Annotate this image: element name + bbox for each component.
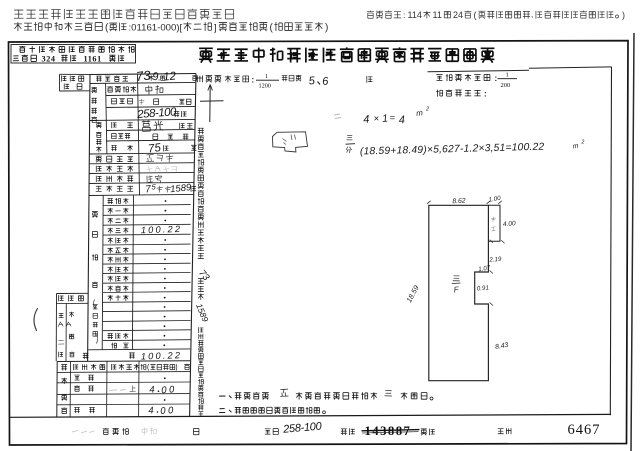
svg-text::: : xyxy=(495,74,498,83)
svg-text:2: 2 xyxy=(581,140,585,146)
svg-text:(: ( xyxy=(474,10,477,20)
svg-text:1: 1 xyxy=(265,73,268,80)
svg-text::: : xyxy=(484,89,487,98)
svg-text::: : xyxy=(252,76,255,85)
svg-text:100.22: 100.22 xyxy=(141,224,183,235)
svg-text:,: , xyxy=(158,75,160,82)
svg-text:258-100: 258-100 xyxy=(136,106,178,121)
svg-text:]: ] xyxy=(214,22,217,33)
svg-text:114: 114 xyxy=(408,10,422,20)
svg-text:200: 200 xyxy=(501,82,511,89)
svg-text:75: 75 xyxy=(147,142,162,156)
svg-text:1589: 1589 xyxy=(170,182,193,195)
svg-text:=: = xyxy=(390,113,396,124)
svg-text:6467: 6467 xyxy=(568,422,601,438)
svg-text:×: × xyxy=(374,114,380,125)
svg-text:258-100: 258-100 xyxy=(282,420,323,435)
svg-text:,: , xyxy=(531,10,533,19)
svg-text:5: 5 xyxy=(152,183,157,192)
svg-text:): ) xyxy=(325,23,328,34)
svg-text:73: 73 xyxy=(135,67,152,84)
svg-text::01161-000)[: :01161-000)[ xyxy=(129,22,183,33)
svg-text:4: 4 xyxy=(363,114,370,126)
svg-text:00: 00 xyxy=(160,405,176,417)
svg-text:324: 324 xyxy=(42,55,56,64)
svg-text:5: 5 xyxy=(308,75,316,88)
svg-text:m: m xyxy=(572,143,579,151)
svg-text:4.00: 4.00 xyxy=(503,220,517,228)
svg-text:4: 4 xyxy=(398,114,405,126)
svg-text:8.43: 8.43 xyxy=(495,342,509,351)
svg-text:(: ( xyxy=(270,23,274,34)
svg-text:11: 11 xyxy=(433,10,442,20)
svg-text:m: m xyxy=(416,108,424,118)
svg-text:): ) xyxy=(622,10,625,20)
svg-text:2: 2 xyxy=(425,107,429,113)
svg-text:1.07: 1.07 xyxy=(478,264,491,273)
svg-text:0.91: 0.91 xyxy=(477,284,490,292)
svg-text:100.22: 100.22 xyxy=(141,350,183,361)
svg-text:1589: 1589 xyxy=(194,302,210,324)
svg-text:1161: 1161 xyxy=(84,55,102,64)
svg-text:F: F xyxy=(453,285,460,295)
svg-text:(18.59+18.49)×5,627-1.2×3,51=1: (18.59+18.49)×5,627-1.2×3,51=100.22 xyxy=(360,142,545,158)
svg-text:4: 4 xyxy=(149,384,155,395)
svg-text:2.19: 2.19 xyxy=(488,256,502,264)
svg-text:6: 6 xyxy=(322,75,330,88)
svg-text:(: ( xyxy=(105,23,109,34)
svg-text:12: 12 xyxy=(163,70,177,83)
svg-text:00: 00 xyxy=(161,384,177,396)
svg-text:1: 1 xyxy=(506,72,509,79)
svg-text::: : xyxy=(403,10,405,20)
svg-text:18.59: 18.59 xyxy=(404,284,420,304)
svg-text:1: 1 xyxy=(382,112,389,125)
svg-text:4: 4 xyxy=(148,405,154,416)
svg-text:1200: 1200 xyxy=(259,82,271,89)
svg-text:8.62: 8.62 xyxy=(452,198,466,206)
svg-text:24: 24 xyxy=(453,10,463,20)
